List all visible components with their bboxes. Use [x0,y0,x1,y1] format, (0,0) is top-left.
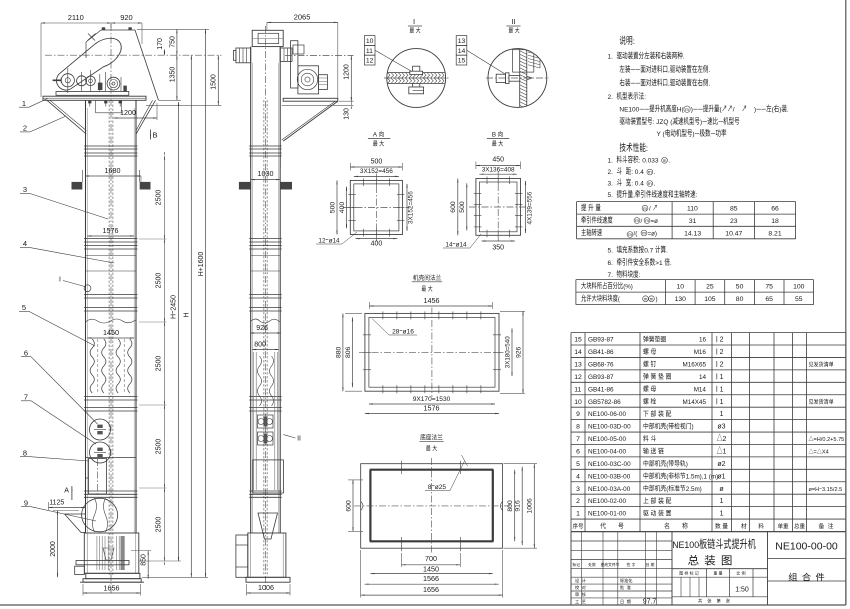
svg-text:1450: 1450 [103,328,119,337]
svg-text:.: . [666,248,668,255]
svg-text:ø=H: ø=H [809,487,820,493]
svg-text:1200: 1200 [120,108,136,117]
svg-text:3X180=540: 3X180=540 [504,336,511,368]
svg-text:2065: 2065 [294,13,311,22]
svg-text:75: 75 [765,284,773,291]
svg-text:105: 105 [704,296,716,303]
svg-text:1450: 1450 [423,565,439,574]
svg-text:1: 1 [720,386,724,393]
svg-text:130: 130 [675,296,687,303]
svg-text:1: 1 [720,374,724,381]
svg-text:10.47: 10.47 [725,230,742,237]
svg-text:4: 4 [23,239,27,248]
svg-text:: 0.4: : 0.4 [631,181,644,188]
svg-text:2: 2 [723,436,727,443]
svg-text:450: 450 [492,157,504,164]
svg-text:1030: 1030 [258,169,274,178]
svg-text:2500: 2500 [156,190,163,206]
svg-text:9: 9 [24,498,28,507]
svg-text:18: 18 [771,218,779,225]
svg-text:): ) [691,107,693,114]
svg-text:15: 15 [574,337,582,344]
svg-text:.: . [668,158,670,165]
svg-text:170: 170 [157,38,164,50]
svg-text:5.: 5. [608,192,614,199]
svg-text:m: m [628,232,632,237]
svg-text:NE100-03C-00: NE100-03C-00 [588,461,631,468]
svg-text:m: m [642,231,646,236]
svg-text:920: 920 [120,13,133,22]
svg-text:ø1: ø1 [717,473,725,480]
svg-text:800: 800 [507,500,514,512]
svg-text:H(: H( [677,107,685,114]
svg-text:m: m [635,218,639,223]
svg-text:14: 14 [574,349,582,356]
svg-text:1576: 1576 [103,226,119,235]
svg-text:I: I [413,17,415,26]
svg-text:/: / [641,218,643,225]
svg-text:2: 2 [720,361,724,368]
svg-text:m: m [663,158,667,163]
svg-text:1576: 1576 [424,403,440,412]
svg-text:B: B [153,131,158,140]
svg-text:m: m [648,181,652,186]
svg-text:130: 130 [344,108,351,120]
svg-text:1: 1 [720,411,724,418]
svg-text:ø: ø [719,486,724,493]
svg-text:5: 5 [22,303,26,312]
svg-text::: : [696,192,698,199]
svg-text:80: 80 [736,296,744,303]
svg-text:Y (: Y ( [657,131,666,138]
svg-text:14: 14 [445,242,453,249]
svg-text:500: 500 [371,159,383,166]
svg-text:0.7: 0.7 [644,248,653,255]
svg-text:M16: M16 [694,349,707,356]
svg-text:NE100-03A-00: NE100-03A-00 [588,486,631,493]
svg-text:100: 100 [793,284,805,291]
svg-text:850: 850 [141,554,148,566]
svg-text:12: 12 [574,374,582,381]
svg-text:65: 65 [765,296,773,303]
svg-text:1200: 1200 [344,64,351,80]
svg-text:10: 10 [574,399,582,406]
svg-text:1006: 1006 [527,498,534,513]
svg-text:926: 926 [515,346,522,358]
svg-text:1.: 1. [608,158,614,165]
svg-text:50: 50 [736,284,744,291]
svg-text:m: m [648,170,652,175]
svg-text:NE100: NE100 [672,540,699,550]
svg-text:M14X45: M14X45 [683,399,707,406]
svg-text:m: m [643,206,647,211]
svg-text:H+1600: H+1600 [198,252,205,277]
svg-text:12: 12 [318,238,326,245]
svg-text::: : [633,37,635,46]
svg-text:.: . [683,54,685,61]
svg-text:2.: 2. [608,94,614,101]
svg-text:NE100-02-00: NE100-02-00 [588,498,626,505]
svg-text:/: / [649,206,651,213]
svg-text:(%): (%) [623,284,633,291]
svg-text:700: 700 [425,554,437,563]
svg-text:GB5782-86: GB5782-86 [588,399,621,406]
svg-text:GB41-86: GB41-86 [588,349,614,356]
svg-text:): ) [700,119,702,126]
svg-text:1006: 1006 [258,583,274,592]
svg-text:ø3: ø3 [717,424,725,431]
svg-text:m: m [685,107,689,112]
svg-text::: : [646,144,648,153]
svg-text:1500: 1500 [211,74,218,90]
svg-text:): ) [692,424,694,431]
svg-text:ø16: ø16 [403,329,415,336]
svg-text:8: 8 [23,448,27,457]
svg-text:916: 916 [515,500,522,512]
svg-text:M16X65: M16X65 [683,361,707,368]
svg-text:2: 2 [576,498,580,505]
svg-text:NE100-06-00: NE100-06-00 [588,411,626,418]
svg-text:,: , [668,81,670,88]
svg-text:2110: 2110 [68,13,84,22]
svg-text:3X152=456: 3X152=456 [407,191,414,224]
svg-text:GB68-76: GB68-76 [588,361,614,368]
svg-text:NE100-03D-00: NE100-03D-00 [588,424,631,431]
svg-text:: 0.033: : 0.033 [639,158,659,165]
svg-text:600: 600 [450,201,457,213]
svg-text:500: 500 [459,201,466,213]
svg-text:ø14: ø14 [456,242,467,249]
svg-text:ø25: ø25 [435,484,447,491]
svg-text:): ) [692,131,694,138]
svg-text:6.: 6. [608,260,614,267]
svg-text:.: . [654,181,656,188]
svg-text:9X170=1530: 9X170=1530 [413,396,451,403]
svg-text:14: 14 [458,48,466,55]
svg-text:15: 15 [458,58,466,65]
svg-text:=ø): =ø) [648,230,657,237]
svg-text:ø14: ø14 [329,238,340,245]
svg-text:NE100-01-00: NE100-01-00 [588,511,626,518]
svg-text:NE100-03B-00: NE100-03B-00 [588,473,631,480]
svg-text:800: 800 [254,342,266,349]
svg-text:31: 31 [689,218,697,225]
svg-text:H: H [171,314,178,319]
svg-text:97.7: 97.7 [643,598,657,605]
svg-text:4: 4 [576,473,580,480]
svg-text:H: H [184,312,191,317]
svg-text:I: I [59,277,61,284]
svg-text:8.21: 8.21 [768,230,781,237]
svg-text:11: 11 [574,386,581,393]
svg-text:1: 1 [720,498,724,505]
svg-text:10: 10 [677,284,685,291]
svg-text:13: 13 [458,38,466,45]
svg-text:3: 3 [576,486,580,493]
svg-text:1566: 1566 [423,574,439,583]
svg-text:NE100-00-00: NE100-00-00 [775,541,838,553]
svg-text:.: . [708,81,710,88]
svg-text:NE100-05-00: NE100-05-00 [588,436,626,443]
svg-text:750: 750 [169,36,176,48]
svg-text:14: 14 [699,374,707,381]
svg-text:X4: X4 [822,449,829,455]
svg-text:110: 110 [687,206,698,213]
svg-text:600: 600 [345,500,352,512]
svg-text:400: 400 [371,241,383,248]
svg-text:8: 8 [428,484,432,491]
svg-text:5: 5 [576,461,580,468]
svg-text:A: A [64,488,69,495]
svg-text:=ø: =ø [651,218,659,225]
svg-text:2500: 2500 [156,356,163,372]
svg-text:10: 10 [366,38,374,45]
svg-text:2500: 2500 [156,517,163,533]
svg-text:1350: 1350 [169,67,176,83]
svg-text:ø2: ø2 [717,461,725,468]
svg-text:28: 28 [392,329,400,336]
svg-text:7: 7 [576,436,580,443]
svg-text:2500: 2500 [156,273,163,289]
svg-text:2000: 2000 [50,541,57,557]
svg-text:: 0.4: : 0.4 [631,169,644,176]
svg-text:500: 500 [329,202,336,214]
svg-text:3.15/2.5: 3.15/2.5 [822,487,842,493]
svg-text:): ) [779,107,781,114]
svg-text:2: 2 [23,124,27,133]
svg-text:12: 12 [366,58,374,65]
svg-text:1456: 1456 [424,296,440,305]
svg-text:350: 350 [492,245,504,252]
svg-text:2: 2 [720,337,724,344]
svg-text:2: 2 [720,349,724,356]
svg-text:1: 1 [22,99,26,108]
svg-text:1680: 1680 [105,166,121,175]
svg-text:25: 25 [706,284,714,291]
svg-text:2.: 2. [608,169,614,176]
svg-text:55: 55 [795,296,803,303]
svg-text:1.: 1. [608,54,614,61]
svg-text:9: 9 [576,411,580,418]
svg-text:II: II [297,436,301,443]
svg-text:880: 880 [335,346,342,358]
svg-text:): ) [656,296,658,303]
svg-text:4X139=556: 4X139=556 [526,191,533,224]
svg-text:1: 1 [576,511,580,518]
svg-text:GB41-86: GB41-86 [588,386,614,393]
svg-text:6: 6 [24,348,28,357]
svg-text:1125: 1125 [49,500,64,507]
svg-text:7.: 7. [608,272,614,279]
svg-text:m: m [645,218,649,223]
svg-text:>1: >1 [655,260,663,267]
svg-text:1656: 1656 [423,585,439,594]
svg-text::: : [639,272,641,279]
svg-text:1: 1 [720,511,724,518]
svg-text:1656: 1656 [104,584,120,593]
svg-text::: : [644,94,646,101]
svg-text:7: 7 [24,392,28,401]
svg-text:,: , [668,67,670,74]
svg-text:400: 400 [339,202,346,214]
svg-text:m: m [644,296,648,301]
svg-text:=: = [814,449,817,455]
svg-text:.: . [654,169,656,176]
svg-text:M14: M14 [694,386,707,393]
svg-text:85: 85 [730,206,738,213]
svg-text:,: , [633,192,635,199]
svg-text:m: m [650,296,654,301]
svg-text:: JZQ (: : JZQ ( [653,119,674,126]
svg-text:8: 8 [576,424,580,431]
svg-text:16: 16 [699,337,707,344]
svg-text:.: . [670,260,672,267]
svg-text:13: 13 [574,361,582,368]
svg-text:1.5m),1 (m): 1.5m),1 (m) [686,473,719,480]
svg-text:23: 23 [730,218,738,225]
svg-text:GB93-87: GB93-87 [588,374,614,381]
svg-text:2500: 2500 [156,439,163,455]
svg-text:.: . [787,107,789,114]
svg-text:6: 6 [576,448,580,455]
svg-text:/: / [733,107,735,114]
svg-text:1: 1 [723,448,727,455]
svg-text:3: 3 [23,185,27,194]
svg-text:2450: 2450 [171,295,178,311]
svg-text:14.13: 14.13 [684,230,701,237]
svg-text:=H/0.2+5.75: =H/0.2+5.75 [814,437,845,443]
svg-text:5.: 5. [608,248,614,255]
svg-text:66: 66 [771,206,779,213]
svg-text:II: II [511,17,515,26]
svg-text:3.: 3. [608,181,614,188]
svg-text:B: B [492,132,496,139]
svg-text:1: 1 [720,399,724,406]
svg-text:2.5m): 2.5m) [686,486,702,493]
svg-text:): ) [686,461,688,468]
svg-text:NE100: NE100 [619,107,639,114]
svg-text:11: 11 [366,48,373,55]
svg-text:): ) [754,107,756,114]
svg-text:.: . [708,67,710,74]
svg-text:GB93-87: GB93-87 [588,337,614,344]
svg-text:806: 806 [345,346,352,358]
svg-text:926: 926 [256,325,268,332]
svg-text:NE100-04-00: NE100-04-00 [588,448,626,455]
svg-text:1:50: 1:50 [735,587,749,594]
